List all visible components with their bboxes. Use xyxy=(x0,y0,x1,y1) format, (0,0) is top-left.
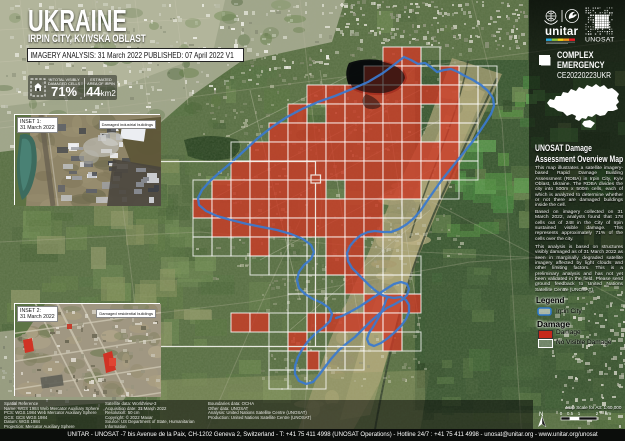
svg-text:1: 1 xyxy=(578,411,581,416)
svg-text:unitar: unitar xyxy=(545,26,578,38)
svg-text:km: km xyxy=(605,411,611,416)
svg-text:0: 0 xyxy=(560,411,563,416)
svg-text:0.5: 0.5 xyxy=(567,411,574,416)
svg-text:N: N xyxy=(539,412,543,418)
svg-text:2: 2 xyxy=(596,411,599,416)
svg-text:UNOSAT: UNOSAT xyxy=(585,37,615,44)
